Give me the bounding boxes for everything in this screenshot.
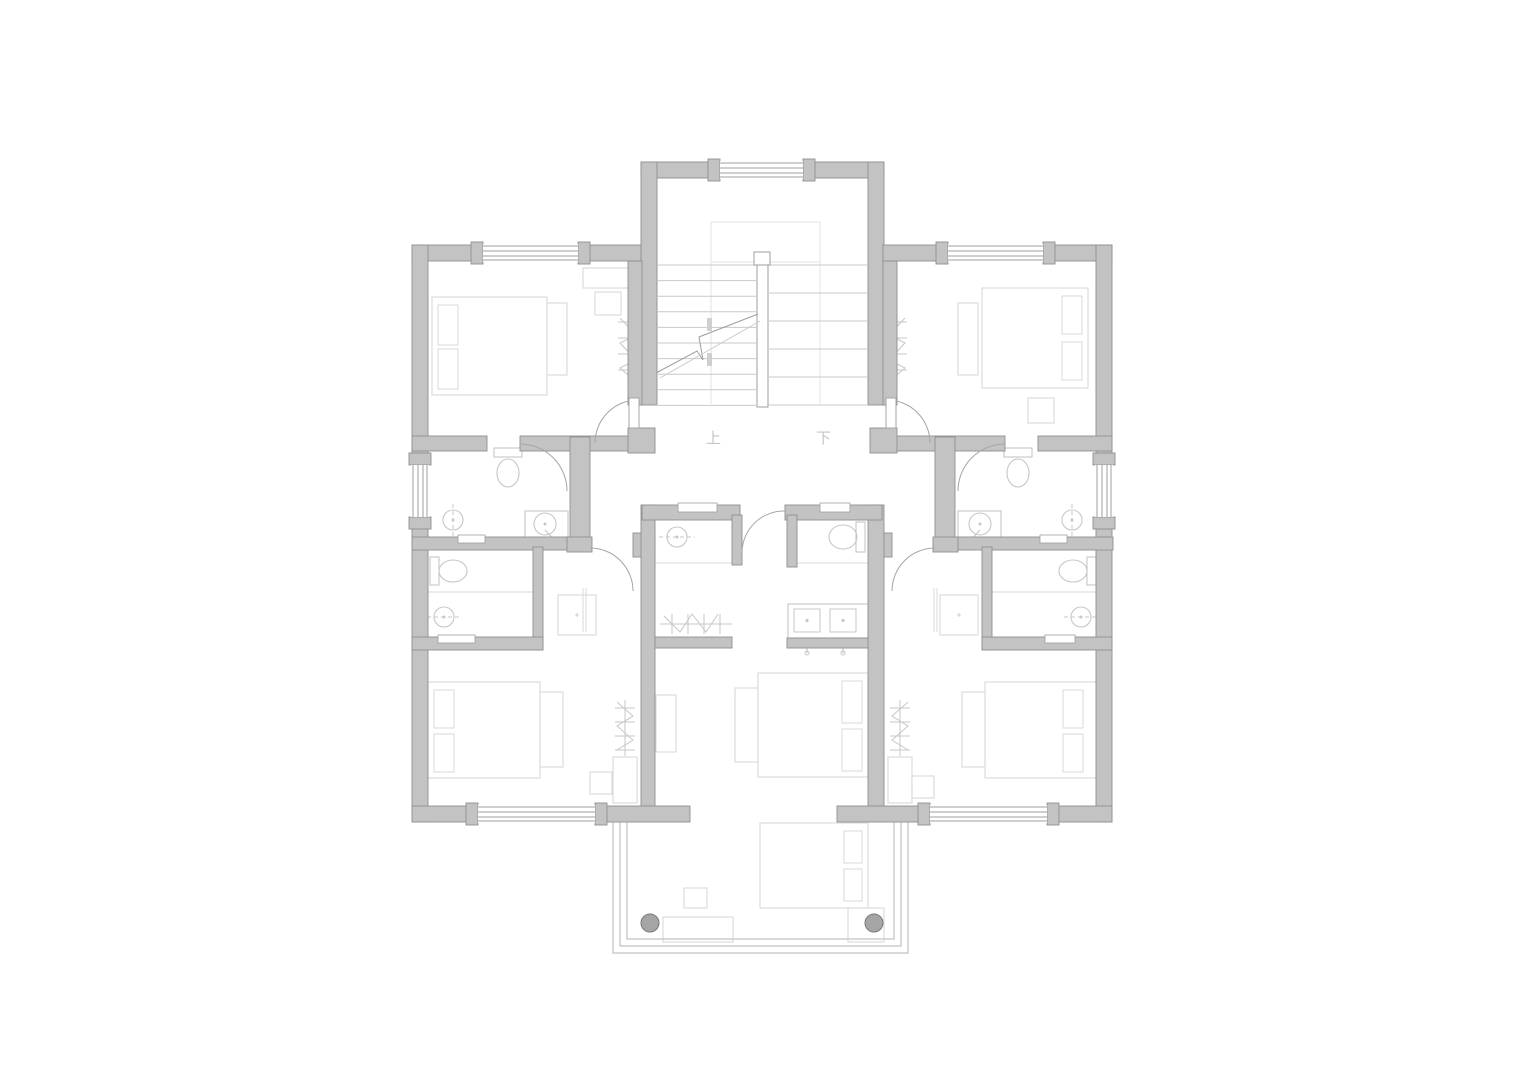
stair-direction-label: 上 — [706, 429, 721, 447]
floor-plan-svg: 上下 — [0, 0, 1536, 1086]
labels-layer: 上下 — [706, 429, 831, 447]
floor-plan: 上下 — [0, 0, 1536, 1086]
stair-direction-label: 下 — [816, 429, 831, 447]
fixtures-layer — [427, 448, 1098, 655]
doors-layer — [520, 398, 1005, 591]
stairs-layer — [656, 252, 867, 407]
